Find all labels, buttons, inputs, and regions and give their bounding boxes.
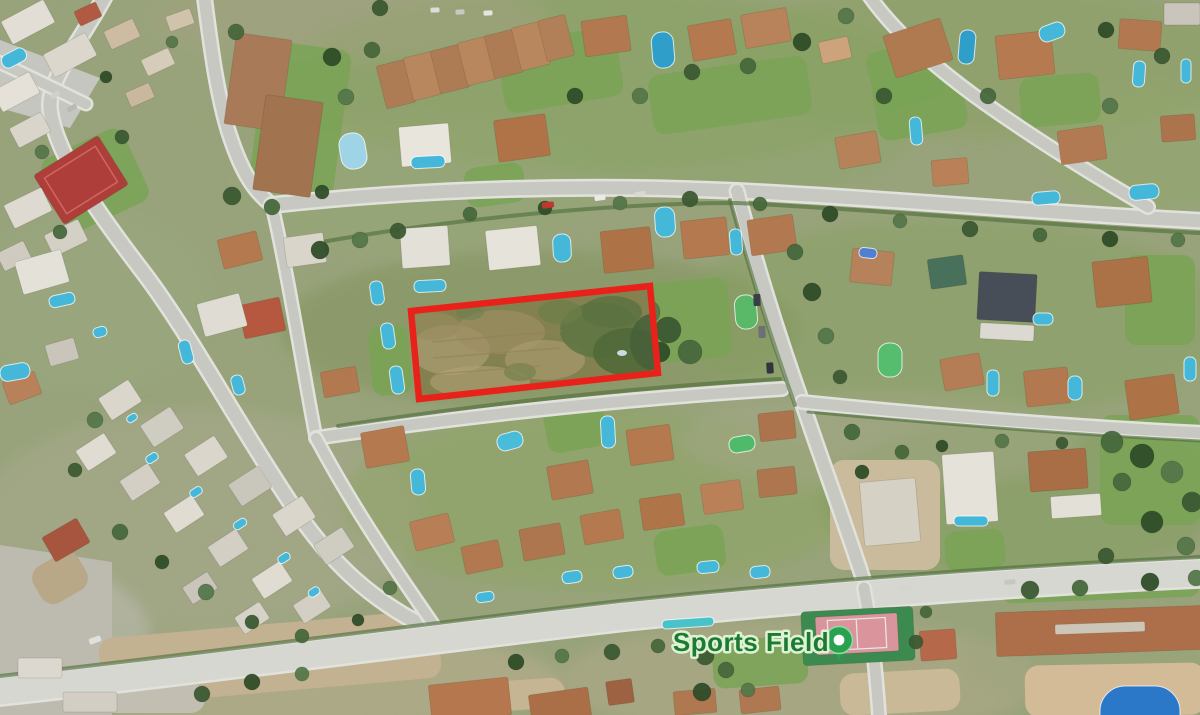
satellite-map-screenshot[interactable]: Sports Field	[0, 0, 1200, 715]
pool	[552, 234, 571, 263]
tree	[555, 649, 569, 663]
house	[1092, 256, 1153, 308]
tree	[68, 463, 82, 477]
tree	[682, 191, 698, 207]
tree	[980, 88, 996, 104]
tree	[838, 8, 854, 24]
pool	[654, 206, 676, 237]
tree	[315, 185, 329, 199]
tree	[787, 244, 803, 260]
tree	[372, 0, 388, 16]
tree	[1171, 233, 1185, 247]
house	[605, 678, 634, 705]
tree	[53, 225, 67, 239]
tree	[323, 48, 341, 66]
tree	[223, 187, 241, 205]
tree	[893, 214, 907, 228]
house	[1124, 374, 1179, 421]
car	[758, 326, 766, 338]
tree	[166, 36, 178, 48]
tree	[245, 615, 259, 629]
dirt-patch	[839, 668, 961, 715]
tree	[228, 24, 244, 40]
house	[580, 509, 625, 545]
marker-center-dot	[834, 635, 845, 646]
tree	[1182, 492, 1200, 512]
house	[639, 493, 685, 531]
house	[519, 523, 566, 562]
pool	[1100, 686, 1180, 715]
pool	[410, 468, 426, 495]
tree	[264, 199, 280, 215]
tree	[87, 412, 103, 428]
tree	[1177, 537, 1195, 555]
house	[1023, 367, 1071, 407]
house	[546, 460, 593, 501]
car	[753, 294, 760, 306]
tree	[855, 465, 869, 479]
car	[1004, 579, 1015, 585]
tree	[112, 524, 128, 540]
tree	[1101, 431, 1123, 453]
plot-patch	[617, 350, 627, 356]
house	[626, 424, 675, 466]
tree	[295, 667, 309, 681]
house	[919, 629, 957, 661]
tree	[876, 88, 892, 104]
tree	[822, 206, 838, 222]
plot-patch	[504, 363, 536, 381]
lawn	[944, 528, 1007, 572]
pool	[749, 565, 770, 579]
tree	[338, 89, 354, 105]
house	[1160, 114, 1196, 142]
pool	[1033, 313, 1053, 325]
car	[455, 9, 464, 14]
tree	[311, 241, 329, 259]
tree	[740, 58, 756, 74]
house	[1118, 19, 1162, 52]
pool	[475, 591, 494, 603]
pool	[954, 516, 988, 526]
tree	[352, 232, 368, 248]
car	[899, 585, 911, 592]
house	[493, 114, 550, 163]
house	[700, 479, 744, 514]
pool	[1184, 357, 1196, 381]
lawn	[1018, 72, 1102, 129]
pool	[987, 370, 999, 396]
tree	[390, 223, 406, 239]
tree	[383, 581, 397, 595]
tree	[753, 197, 767, 211]
tree	[962, 221, 978, 237]
tree	[352, 614, 364, 626]
house	[1028, 448, 1089, 492]
tree	[508, 654, 524, 670]
pool	[859, 247, 878, 259]
house	[1050, 493, 1101, 518]
tree	[920, 606, 932, 618]
pool	[878, 343, 902, 377]
house	[1164, 3, 1200, 25]
tree	[1141, 573, 1159, 591]
house	[758, 410, 797, 442]
house	[485, 225, 541, 270]
tree	[364, 42, 380, 58]
house	[687, 18, 737, 61]
pool	[1031, 190, 1060, 205]
house	[63, 692, 117, 712]
tree	[155, 555, 169, 569]
tree	[793, 33, 811, 51]
tree	[718, 662, 734, 678]
tree	[604, 644, 620, 660]
pool	[1132, 61, 1146, 88]
house	[859, 478, 920, 547]
tree	[995, 434, 1009, 448]
tree	[833, 370, 847, 384]
tree	[1161, 461, 1183, 483]
pool	[411, 155, 446, 169]
car	[483, 10, 492, 15]
tree	[1098, 22, 1114, 38]
pool	[414, 279, 447, 293]
pool	[958, 29, 977, 64]
house	[1057, 125, 1107, 165]
house	[835, 131, 882, 170]
tree	[613, 196, 627, 210]
tree	[1102, 231, 1118, 247]
tree	[632, 88, 648, 104]
tree	[818, 328, 834, 344]
tree	[844, 424, 860, 440]
tree	[194, 686, 210, 702]
house	[927, 255, 967, 290]
car	[766, 362, 774, 373]
tree	[803, 283, 821, 301]
car	[430, 7, 439, 12]
pool	[696, 560, 719, 574]
house	[977, 272, 1037, 323]
tree	[244, 674, 260, 690]
plot-patch	[538, 300, 582, 324]
tree	[1130, 444, 1154, 468]
tree	[1021, 581, 1039, 599]
tree	[1141, 511, 1163, 533]
tree	[1033, 228, 1047, 242]
pool	[909, 117, 923, 146]
tree	[655, 317, 681, 343]
pool	[729, 229, 743, 256]
tree	[684, 64, 700, 80]
pool	[650, 31, 675, 69]
house	[680, 217, 730, 260]
tree	[35, 145, 49, 159]
house	[757, 466, 798, 498]
house	[18, 658, 62, 678]
house	[980, 323, 1035, 342]
tree	[1102, 98, 1118, 114]
house	[600, 227, 654, 274]
tree	[567, 88, 583, 104]
plot-patch	[582, 296, 642, 328]
pool	[1181, 59, 1191, 83]
tree	[693, 683, 711, 701]
tree	[741, 683, 755, 697]
house	[942, 451, 999, 524]
pool	[1128, 183, 1159, 201]
tree	[1098, 548, 1114, 564]
tree	[1154, 48, 1170, 64]
tree	[1113, 473, 1131, 491]
house	[360, 425, 410, 468]
tree	[678, 340, 702, 364]
tree	[100, 71, 112, 83]
pool	[1068, 376, 1082, 400]
tree	[295, 629, 309, 643]
tree	[651, 639, 665, 653]
tree	[463, 207, 477, 221]
house	[940, 353, 985, 391]
tree	[909, 635, 923, 649]
house	[581, 15, 632, 57]
tree	[936, 440, 948, 452]
pool	[600, 416, 616, 449]
tree	[198, 584, 214, 600]
house	[931, 157, 969, 186]
house	[400, 225, 451, 268]
tree	[1072, 580, 1088, 596]
sports-field-label: Sports Field	[673, 627, 829, 657]
tree	[115, 130, 129, 144]
tree	[895, 445, 909, 459]
tree	[1056, 437, 1068, 449]
satellite-map[interactable]: Sports Field	[0, 0, 1200, 715]
